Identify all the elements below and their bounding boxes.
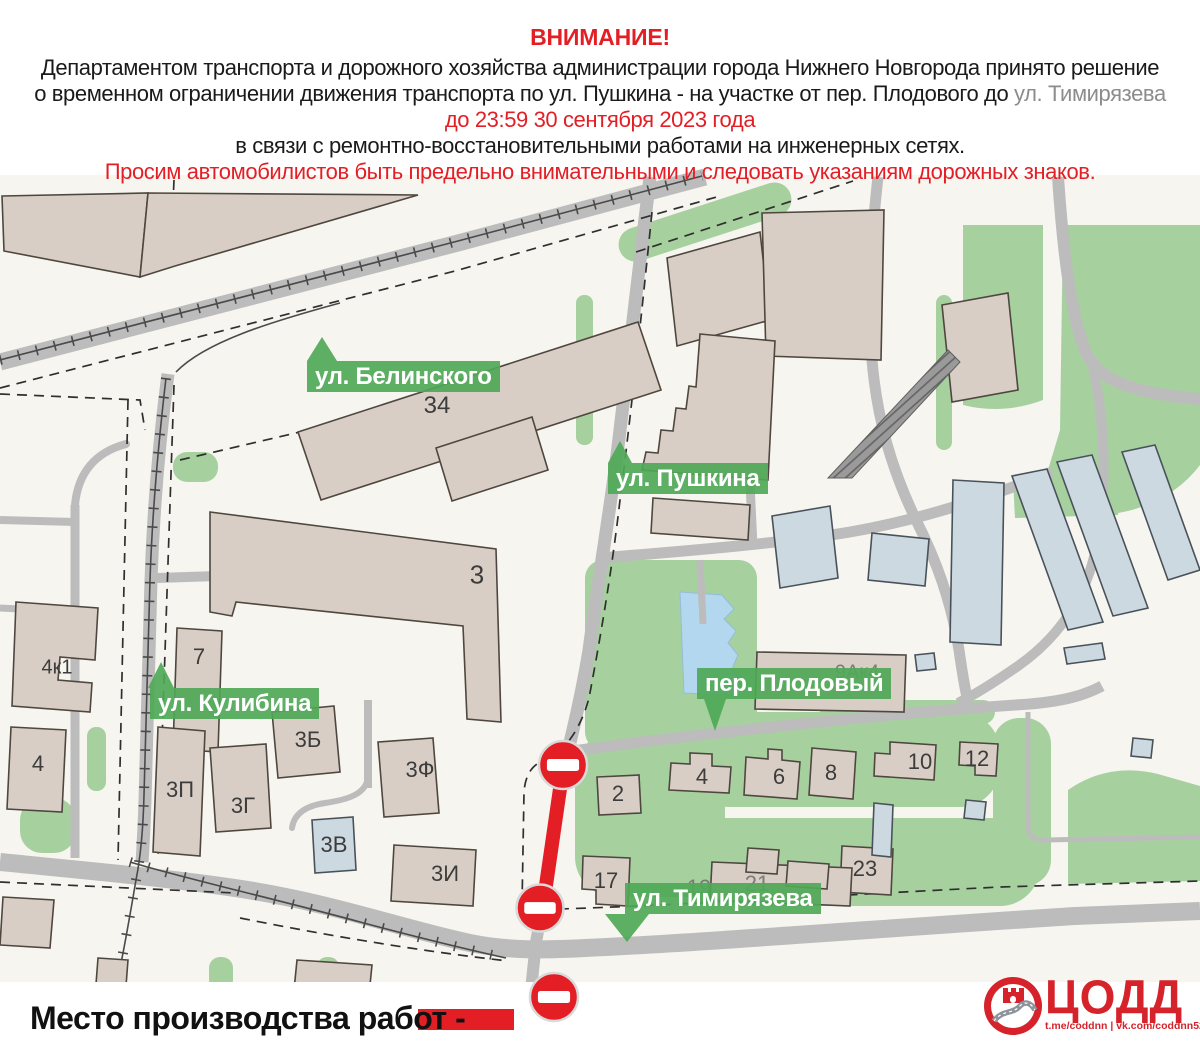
no-entry-sign — [539, 741, 587, 789]
codd-logo-emblem — [984, 977, 1042, 1035]
notice-header: ВНИМАНИЕ! Департаментом транспорта и дор… — [0, 0, 1200, 185]
notice-line-2: о временном ограничении движения транспо… — [0, 81, 1200, 107]
notice-line-2-street: ул. Тимирязева — [1014, 81, 1166, 106]
codd-social-links: t.me/coddnn | vk.com/coddnn52 — [1045, 1020, 1200, 1032]
road-closure-notice: ВНИМАНИЕ! Департаментом транспорта и дор… — [0, 0, 1200, 1041]
notice-line-5: Просим автомобилистов быть предельно вни… — [0, 159, 1200, 185]
no-entry-sign — [530, 973, 578, 1021]
notice-line-3: до 23:59 30 сентября 2023 года — [0, 107, 1200, 133]
legend-label: Место производства работ - — [30, 1000, 465, 1037]
no-entry-sign — [517, 885, 564, 932]
notice-line-1: Департаментом транспорта и дорожного хоз… — [0, 55, 1200, 81]
notice-line-2-main: о временном ограничении движения транспо… — [34, 81, 1014, 106]
codd-wordmark: ЦОДД — [1045, 969, 1183, 1025]
notice-title: ВНИМАНИЕ! — [0, 24, 1200, 51]
notice-line-4: в связи с ремонтно-восстановительными ра… — [0, 133, 1200, 159]
